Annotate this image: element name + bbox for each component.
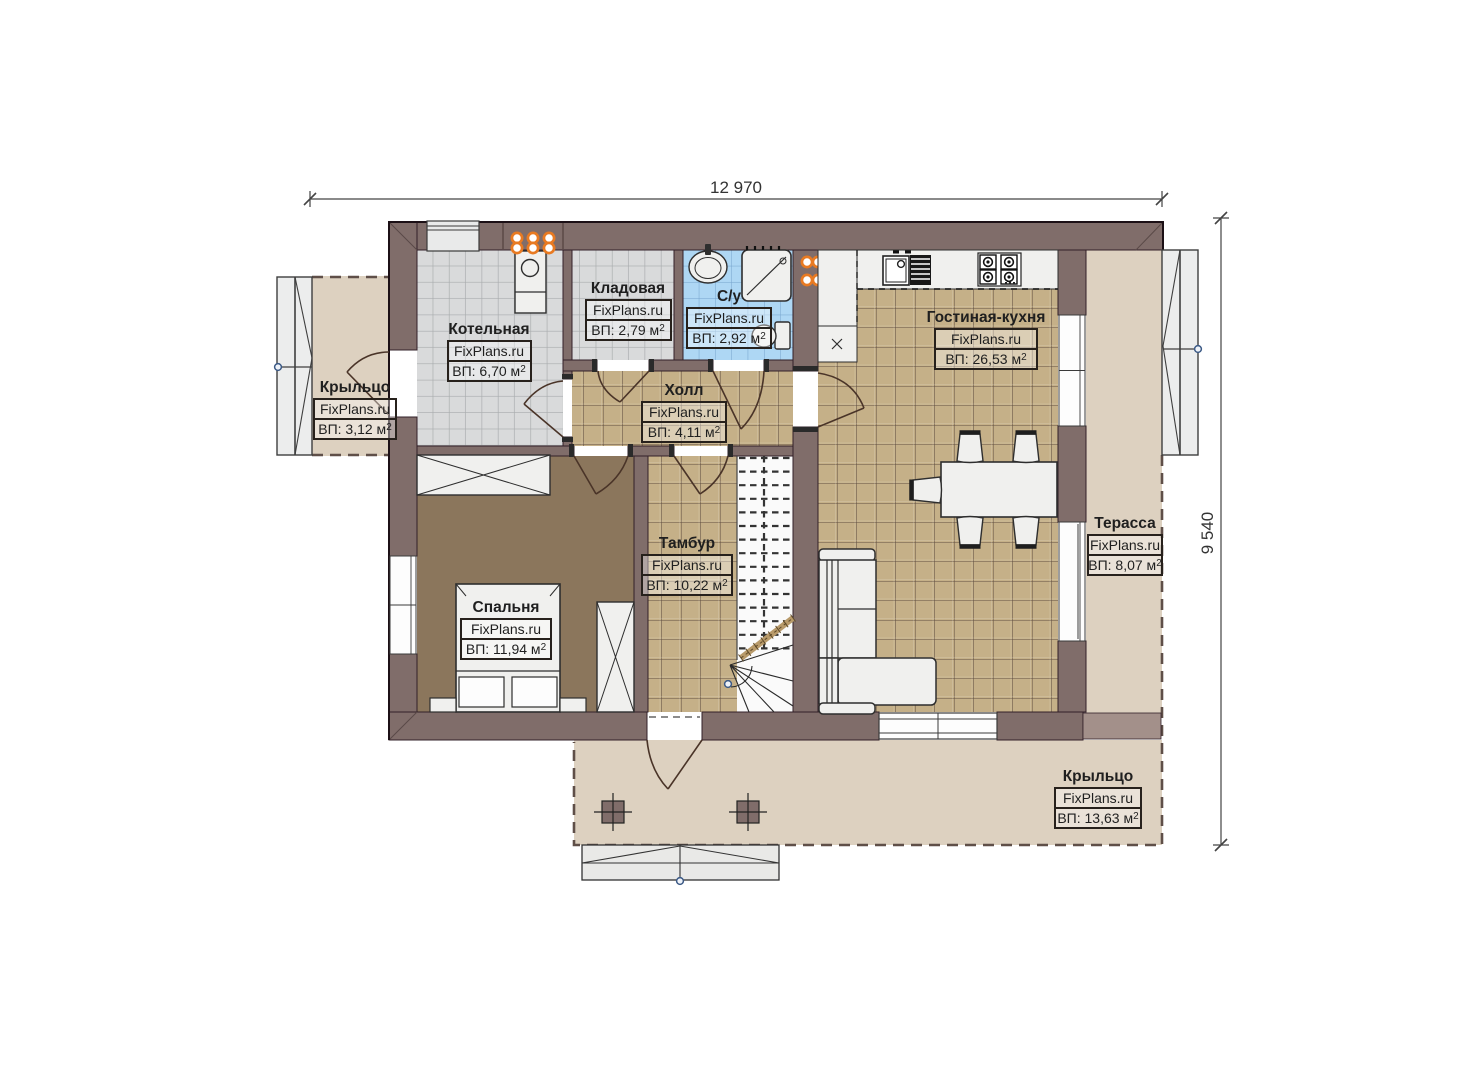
svg-text:Терасса: Терасса: [1094, 515, 1156, 532]
svg-text:Кладовая: Кладовая: [591, 280, 665, 297]
svg-text:ВП: 10,22 м2: ВП: 10,22 м2: [646, 577, 728, 593]
svg-text:12 970: 12 970: [710, 178, 762, 197]
svg-text:ВП: 3,12 м2: ВП: 3,12 м2: [318, 421, 392, 437]
svg-text:ВП: 2,92 м2: ВП: 2,92 м2: [692, 330, 766, 346]
svg-text:FixPlans.ru: FixPlans.ru: [471, 621, 541, 637]
svg-text:FixPlans.ru: FixPlans.ru: [320, 401, 390, 417]
svg-text:Крыльцо: Крыльцо: [320, 379, 391, 396]
svg-text:Гостиная-кухня: Гостиная-кухня: [927, 309, 1046, 326]
svg-text:FixPlans.ru: FixPlans.ru: [1063, 790, 1133, 806]
svg-text:Тамбур: Тамбур: [659, 535, 715, 552]
svg-text:С/у: С/у: [717, 288, 742, 305]
svg-text:FixPlans.ru: FixPlans.ru: [652, 557, 722, 573]
svg-text:Котельная: Котельная: [448, 321, 529, 338]
svg-text:ВП: 26,53 м2: ВП: 26,53 м2: [945, 351, 1027, 367]
svg-text:9 540: 9 540: [1198, 512, 1217, 555]
svg-text:Холл: Холл: [665, 382, 704, 399]
svg-text:FixPlans.ru: FixPlans.ru: [454, 343, 524, 359]
svg-text:FixPlans.ru: FixPlans.ru: [593, 302, 663, 318]
svg-text:ВП: 2,79 м2: ВП: 2,79 м2: [591, 322, 665, 338]
svg-text:Спальня: Спальня: [473, 599, 540, 616]
svg-text:ВП: 8,07 м2: ВП: 8,07 м2: [1088, 557, 1162, 573]
svg-text:ВП: 11,94 м2: ВП: 11,94 м2: [466, 641, 547, 657]
svg-text:ВП: 13,63 м2: ВП: 13,63 м2: [1057, 810, 1139, 826]
svg-text:FixPlans.ru: FixPlans.ru: [951, 331, 1021, 347]
svg-text:FixPlans.ru: FixPlans.ru: [649, 404, 719, 420]
svg-text:Крыльцо: Крыльцо: [1063, 768, 1134, 785]
svg-text:FixPlans.ru: FixPlans.ru: [694, 310, 764, 326]
svg-text:ВП: 4,11 м2: ВП: 4,11 м2: [648, 424, 721, 440]
svg-text:FixPlans.ru: FixPlans.ru: [1090, 537, 1160, 553]
svg-text:ВП: 6,70 м2: ВП: 6,70 м2: [452, 363, 526, 379]
